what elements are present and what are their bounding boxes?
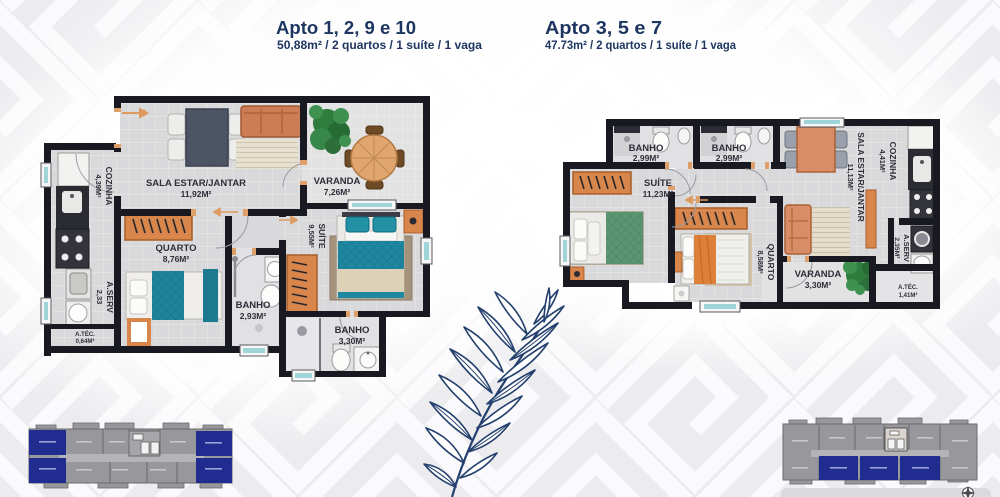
svg-text:SALA ESTAR/JANTAR: SALA ESTAR/JANTAR (146, 178, 246, 189)
svg-text:11,23M²: 11,23M² (643, 189, 674, 199)
svg-text:3,30M²: 3,30M² (339, 336, 366, 346)
svg-text:50,88m² / 2 quartos / 1 suíte: 50,88m² / 2 quartos / 1 suíte / 1 vaga (277, 38, 482, 52)
svg-text:7,26M²: 7,26M² (324, 187, 351, 197)
svg-text:BANHO: BANHO (335, 325, 370, 336)
svg-text:Apto 1, 2, 9 e 10: Apto 1, 2, 9 e 10 (276, 18, 416, 38)
svg-text:A.SERV: A.SERV (105, 281, 115, 313)
svg-text:QUARTO: QUARTO (766, 244, 776, 281)
svg-text:2,33: 2,33 (95, 290, 104, 305)
svg-text:A.SERV: A.SERV (902, 234, 911, 262)
svg-text:11,92M²: 11,92M² (181, 189, 212, 199)
svg-text:SUÍTE: SUÍTE (317, 223, 327, 248)
svg-text:9,55M²: 9,55M² (307, 224, 316, 248)
svg-text:2,93M²: 2,93M² (240, 311, 267, 321)
svg-text:2,99M²: 2,99M² (633, 153, 660, 163)
svg-text:A.TÉC.: A.TÉC. (898, 283, 918, 291)
svg-text:BANHO: BANHO (236, 300, 271, 311)
svg-text:1,41M³: 1,41M³ (899, 292, 918, 299)
svg-text:47.73m² / 2 quartos / 1 suíte: 47.73m² / 2 quartos / 1 suíte / 1 vaga (545, 38, 736, 52)
svg-text:Apto 3, 5 e 7: Apto 3, 5 e 7 (545, 18, 662, 38)
svg-text:4,41M²: 4,41M² (878, 149, 887, 173)
svg-text:VARANDA: VARANDA (795, 269, 842, 280)
svg-text:2,35M²: 2,35M² (893, 237, 900, 259)
svg-text:COZINHA: COZINHA (104, 167, 114, 206)
svg-text:8,58M²: 8,58M² (756, 250, 765, 274)
svg-text:COZINHA: COZINHA (888, 142, 898, 181)
svg-text:3,30M²: 3,30M² (805, 280, 832, 290)
svg-text:2,99M²: 2,99M² (716, 153, 743, 163)
svg-text:VARANDA: VARANDA (314, 176, 361, 187)
svg-text:SALA ESTAR/JANTAR: SALA ESTAR/JANTAR (856, 132, 866, 222)
svg-text:4,39M²: 4,39M² (94, 174, 103, 198)
svg-text:0,64M³: 0,64M³ (76, 338, 95, 345)
svg-text:11,13M²: 11,13M² (846, 163, 855, 191)
svg-text:QUARTO: QUARTO (156, 243, 197, 254)
svg-text:SUÍTE: SUÍTE (644, 178, 672, 189)
svg-text:8,76M²: 8,76M² (163, 254, 190, 264)
svg-text:A.TÉC.: A.TÉC. (75, 330, 95, 338)
